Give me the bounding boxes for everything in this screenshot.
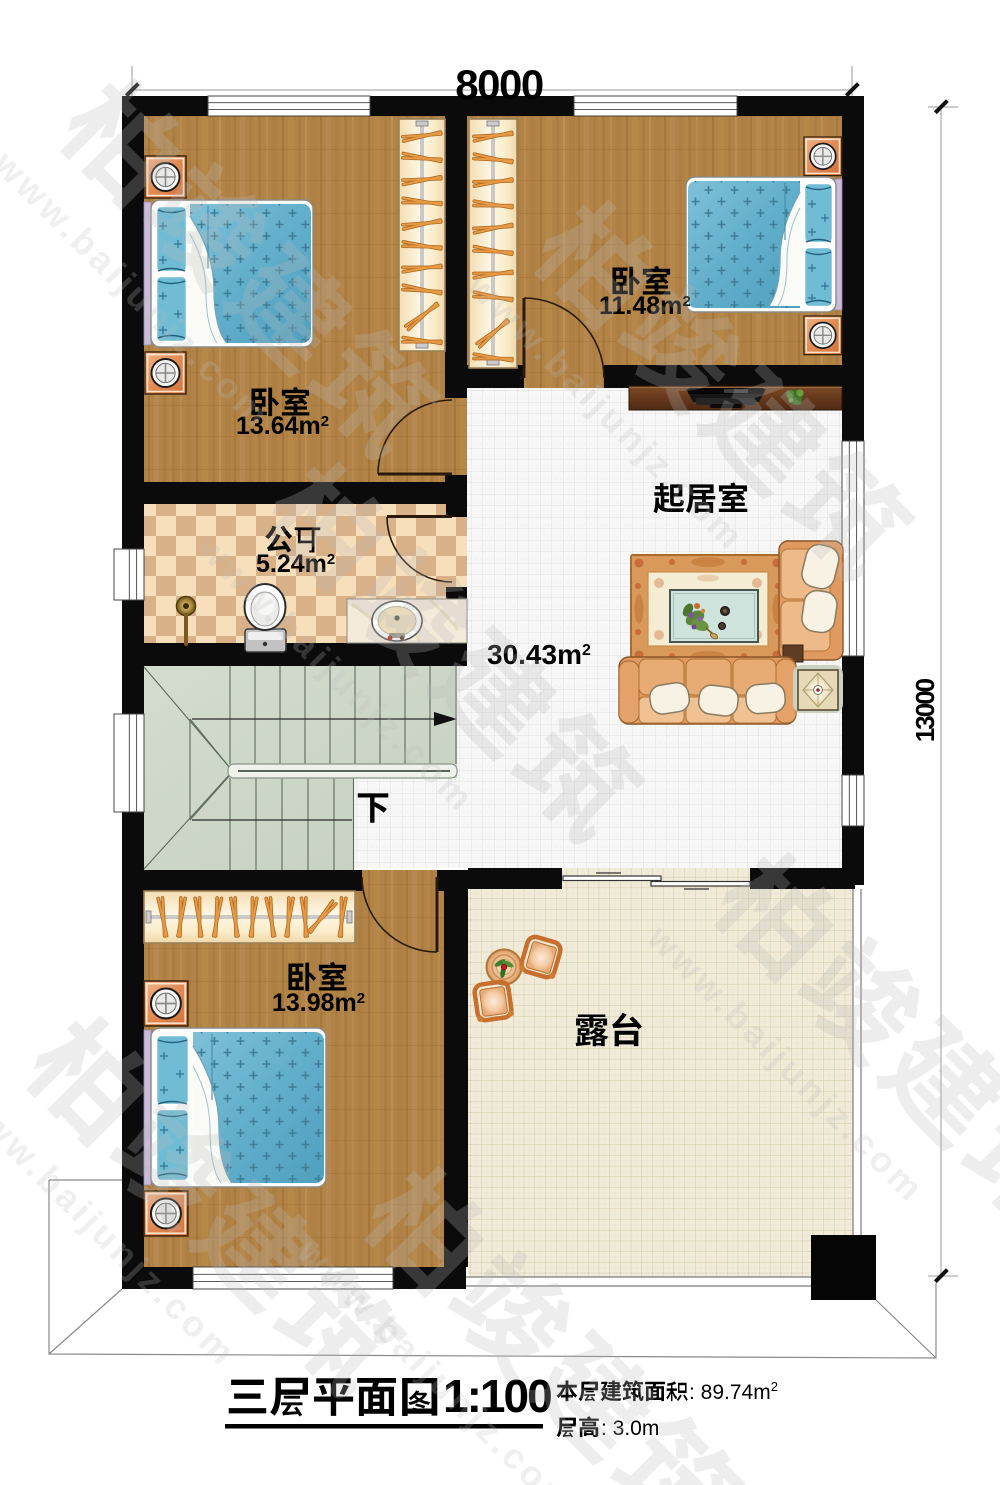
- svg-text:13.98m2: 13.98m2: [272, 989, 365, 1017]
- svg-text:13000: 13000: [910, 678, 940, 742]
- svg-text:8000: 8000: [455, 61, 543, 108]
- svg-text:: 89.74m2: : 89.74m2: [689, 1379, 778, 1404]
